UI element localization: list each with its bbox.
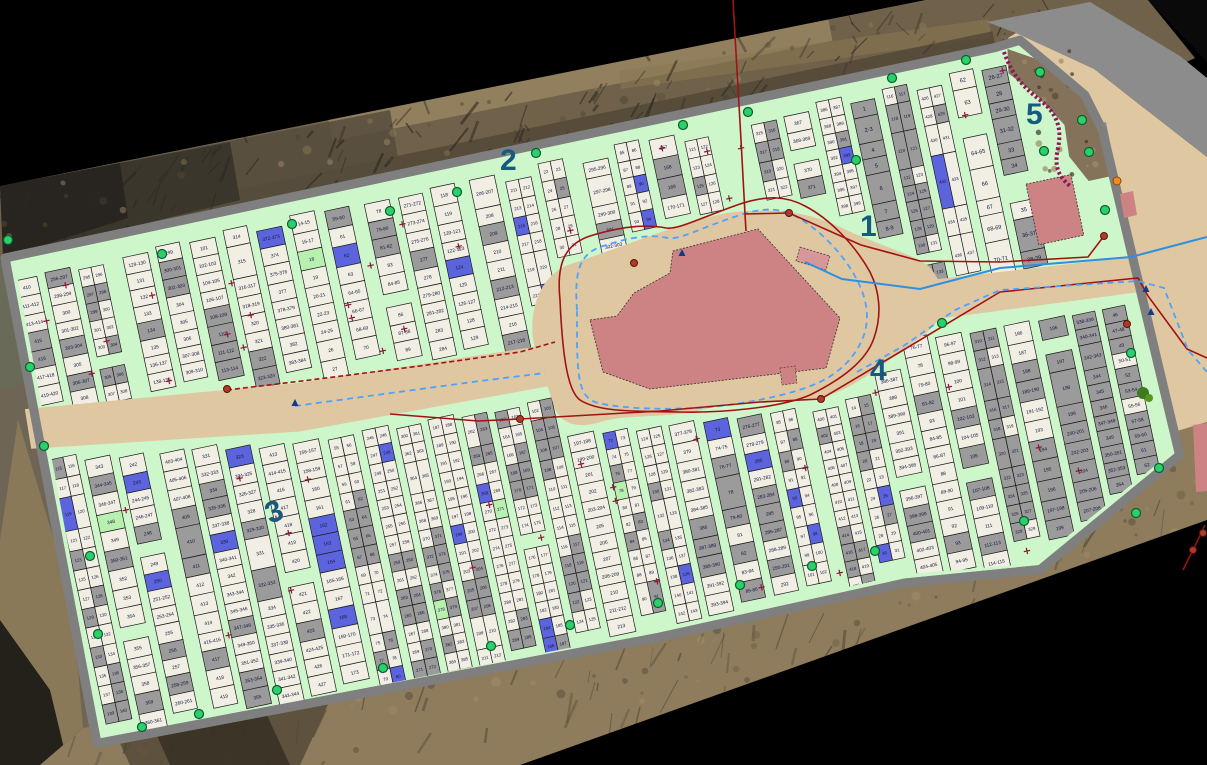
svg-text:66: 66 <box>981 181 988 188</box>
svg-text:28: 28 <box>996 91 1003 98</box>
svg-text:2: 2 <box>500 144 517 177</box>
svg-text:5: 5 <box>1026 98 1043 131</box>
svg-text:63: 63 <box>964 99 971 106</box>
svg-text:67: 67 <box>986 204 993 211</box>
svg-text:4: 4 <box>870 354 887 387</box>
svg-text:35: 35 <box>1020 207 1027 214</box>
svg-text:62: 62 <box>959 77 966 84</box>
svg-text:33: 33 <box>1008 147 1015 154</box>
svg-text:34: 34 <box>1011 163 1018 170</box>
svg-text:1: 1 <box>860 210 877 243</box>
